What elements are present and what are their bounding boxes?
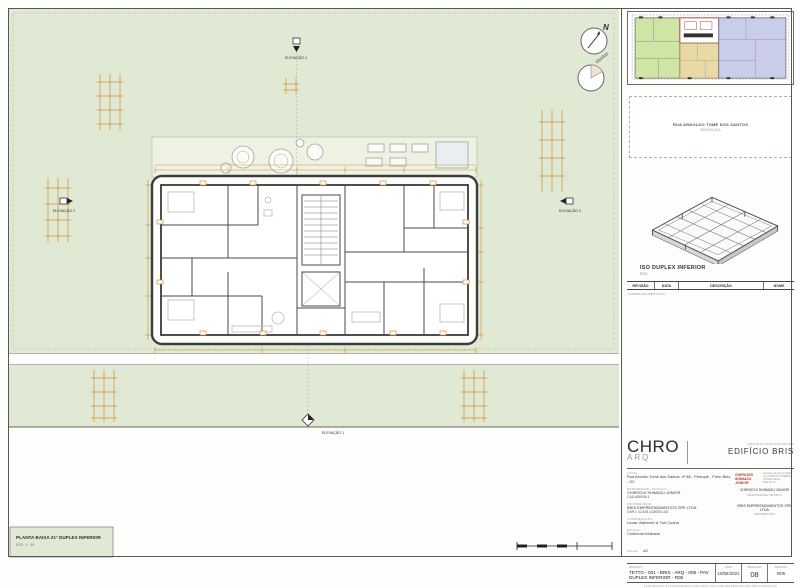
title-block-bottom-row: ASSUNTO: TETTO - 001 - BRIS - ARQ - 008 … xyxy=(627,563,794,583)
data-label: DATA xyxy=(725,565,732,569)
lot-note-line1: RUA ARNOLDO TOMÉ DOS SANTOS xyxy=(673,122,748,127)
drawing-title-box: PLANTA BAIXA 21° DUPLEX INFERIOR ESC: 1 … xyxy=(10,527,113,557)
assunto-label: ASSUNTO: xyxy=(629,565,713,569)
drawing-scale: ESC: 1 : 50 xyxy=(16,543,34,547)
folha-label: FOLHA: xyxy=(627,549,639,553)
key-plan-unit-right xyxy=(719,18,786,78)
prancha-value: 08 xyxy=(750,570,758,579)
assunto-value: TETTO - 001 - BRIS - ARQ - 008 - PAV DUP… xyxy=(629,570,713,581)
key-plan-drawing xyxy=(628,12,793,84)
signer-role: RESPONSÁVEL TÉCNICO xyxy=(735,493,794,497)
north-label: N xyxy=(603,23,609,32)
lot-area-box: RUA ARNOLDO TOMÉ DOS SANTOS SEM ESCALA xyxy=(629,96,792,158)
scale-bar xyxy=(517,542,612,550)
data-value: 10/06/2021 xyxy=(718,571,740,576)
stair-core xyxy=(302,195,340,306)
revision-table: REVISÃO DATA DESCRIÇÃO NOME xyxy=(627,281,794,290)
coord-value: Lucas Valkovich & Yuri Cunha xyxy=(627,521,731,526)
elevation-bottom-label: ELEVAÇÃO 1 xyxy=(322,430,344,435)
key-plan-core xyxy=(680,18,719,43)
roof-terrace xyxy=(152,137,477,177)
lot-note-line2: SEM ESCALA xyxy=(700,128,720,132)
project-type-label: PROJETO ARQUITETÔNICO xyxy=(694,442,794,446)
revision-col-revisao: REVISÃO xyxy=(627,282,655,289)
title-block-fields: LOCAL: Rua Arnoldo Tomé dos Santos, nº 8… xyxy=(627,471,731,560)
project-name: EDIFÍCIO BRIS xyxy=(694,447,794,456)
elevation-left-label: ELEVAÇÃO 2 xyxy=(53,208,75,213)
logo-text: CHRO xyxy=(627,440,679,454)
stamp-name: CHIROCHI SHIMAZU JÚNIOR xyxy=(735,473,761,485)
title-block-header: CHRO ARQ PROJETO ARQUITETÔNICO EDIFÍCIO … xyxy=(627,440,794,469)
iso-view-title: ISO DUPLEX INFERIOR xyxy=(640,265,790,271)
drawing-sheet: ELEVAÇÃO 4 ELEVAÇÃO 1 ELEVAÇÃO 2 ELEVAÇÃ… xyxy=(0,0,800,565)
folha-value: A2 xyxy=(643,548,648,553)
revisao-value: R05 xyxy=(777,571,785,576)
key-plan-box xyxy=(627,11,794,85)
revisao-label: REVISÃO xyxy=(775,565,787,569)
key-plan-unit-left xyxy=(635,18,680,78)
revision-col-descricao: DESCRIÇÃO xyxy=(679,282,764,289)
digital-signature-stamp: CHIROCHI SHIMAZU JÚNIOR Assinado de form… xyxy=(735,473,794,485)
firm-logo: CHRO ARQ xyxy=(627,440,679,462)
floor-plan-drawing: ELEVAÇÃO 4 ELEVAÇÃO 1 ELEVAÇÃO 2 ELEVAÇÃ… xyxy=(0,0,622,565)
signature-area: CHIROCHI SHIMAZU JÚNIOR Assinado de form… xyxy=(731,471,794,560)
revision-note: CARIMBO DE APROVAÇÃO xyxy=(628,292,665,296)
resp-cau: CAU A56936-1 xyxy=(627,495,731,499)
prancha-label: PRANCHA xyxy=(748,565,762,569)
logo-divider xyxy=(687,441,688,464)
iso-view-scale: ESC: xyxy=(640,272,790,276)
local-value: Rua Arnoldo Tomé dos Santos, nº 88 - Per… xyxy=(627,475,731,484)
escala-value: Conforme Indicado xyxy=(627,532,667,537)
key-plan-unit-center xyxy=(680,43,719,78)
elevation-right-label: ELEVAÇÃO 3 xyxy=(559,208,581,213)
owner-name: BRIS EMPREENDIMENTOS SPE LTDA xyxy=(735,504,794,512)
signer-name: CHIROCHI SHIMAZU JÚNIOR xyxy=(735,488,794,492)
drawing-title: PLANTA BAIXA 21° DUPLEX INFERIOR xyxy=(16,535,102,540)
elevation-top-label: ELEVAÇÃO 4 xyxy=(285,55,307,60)
stamp-note: Assinado de forma digital por CHIROCHI S… xyxy=(763,473,794,485)
title-block: CHRO ARQ PROJETO ARQUITETÔNICO EDIFÍCIO … xyxy=(627,440,794,588)
owner-role: PROPRIETÁRIO xyxy=(735,512,794,516)
revision-col-data: DATA xyxy=(655,282,679,289)
iso-view-drawing xyxy=(634,188,790,264)
prop-cnpj: CNPJ: 42.528.143/0001-53 xyxy=(627,510,731,514)
revision-col-nome: NOME xyxy=(764,282,794,289)
copyright-note: ESTE DESENHO É PROPRIEDADE DA CHRO ARQ E… xyxy=(627,585,794,588)
panel-divider xyxy=(621,8,622,557)
